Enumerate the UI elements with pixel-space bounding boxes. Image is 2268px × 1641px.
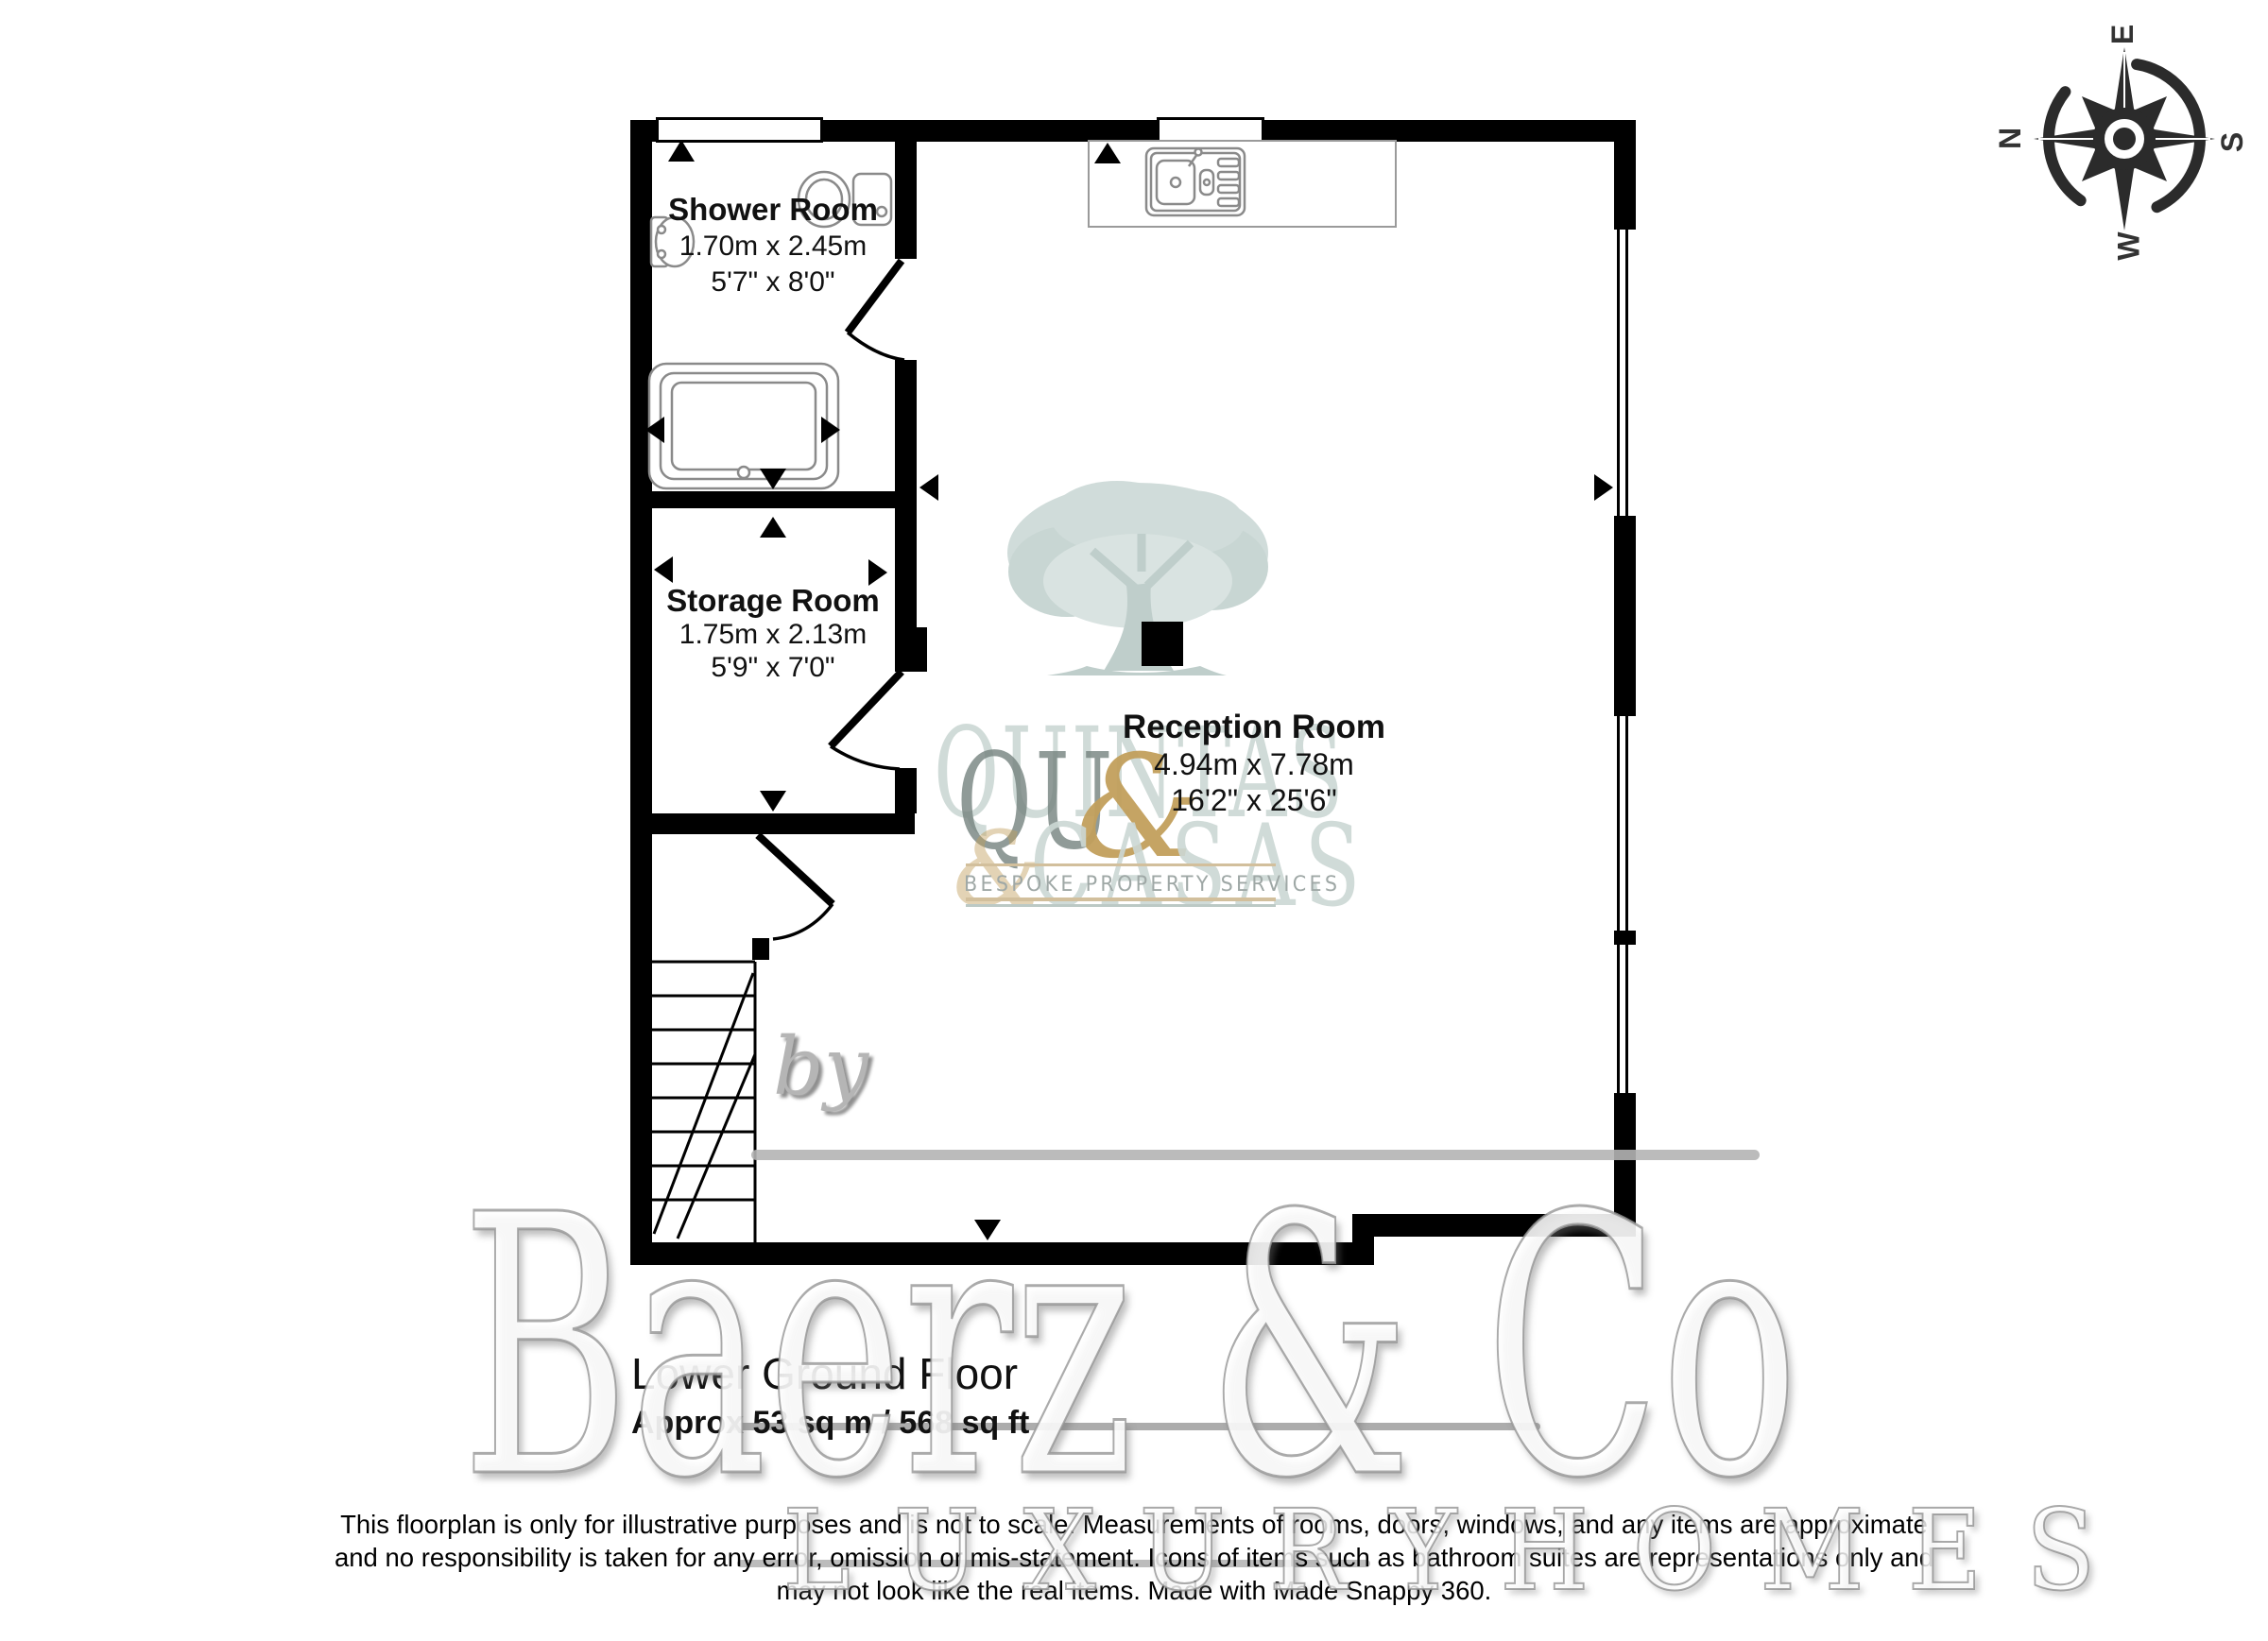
compass-west-label: W [2112,231,2147,260]
compass-north-label: N [1993,128,2028,149]
compass-south-label: S [2215,132,2250,152]
floorplan-page: QUINTAS QU & & CASAS BESPOKE PROPERTY SE… [0,0,2268,1641]
compass-rose-icon [0,0,2268,1641]
compass-east-label: E [2105,25,2140,44]
